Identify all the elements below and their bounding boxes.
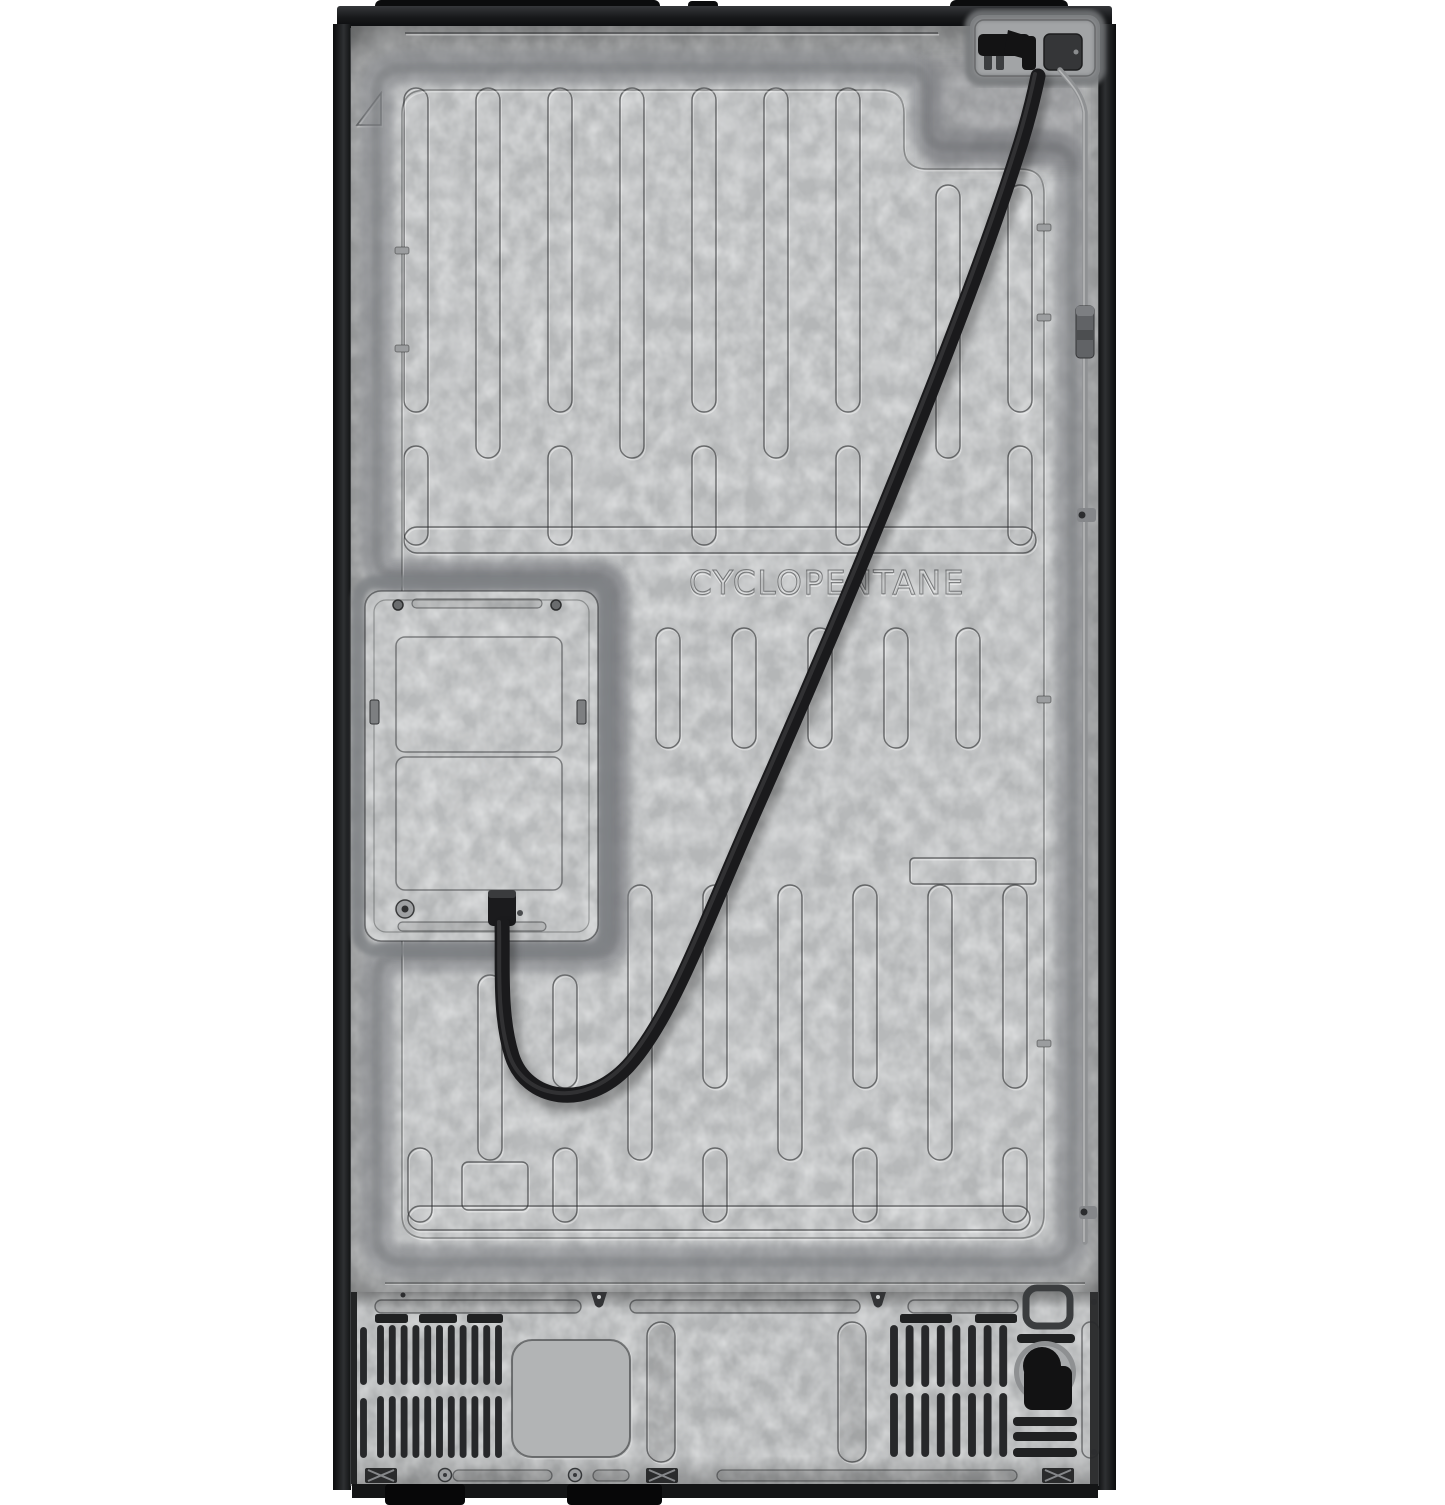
plate-screw-a [401, 1293, 406, 1298]
vent-slat [968, 1325, 976, 1387]
tab [395, 345, 409, 352]
screw-top-left [393, 600, 403, 610]
vent-slat [412, 1396, 419, 1458]
vent-slat [448, 1396, 455, 1458]
fastener-slot-3 [717, 1470, 1017, 1481]
drain-hole [517, 910, 523, 916]
vent-slat [436, 1396, 443, 1458]
vent-slat [999, 1325, 1007, 1387]
v-clip-left-pin [597, 1295, 601, 1299]
center-rib-2 [838, 1322, 866, 1462]
vent-slat [984, 1325, 992, 1387]
access-panel-upper-field [396, 637, 562, 752]
tube-coupling-cap [1076, 306, 1094, 316]
vent-slat [921, 1325, 929, 1387]
vent-slat [401, 1396, 408, 1458]
vent-slat [483, 1325, 490, 1385]
top-slot-right [908, 1300, 1018, 1313]
center-rib-1 [647, 1322, 675, 1462]
fastener-screw-2-dot [573, 1473, 577, 1477]
screw-top-right [551, 600, 561, 610]
vent-slat [401, 1325, 408, 1385]
clip-right [577, 700, 586, 724]
embossed-text: CYCLOPENTANE [689, 563, 965, 602]
clip-left [370, 700, 379, 724]
vent-slat [968, 1393, 976, 1457]
cord-grommet-cap [488, 890, 516, 898]
access-panel-bottom-slot [398, 922, 546, 931]
service-access-panel [358, 582, 606, 950]
plate-gap-left [351, 1292, 357, 1484]
cord-strain-relief [1022, 36, 1036, 70]
foot-center [567, 1484, 662, 1505]
v-clip-right-pin [876, 1295, 880, 1299]
vent-dash [975, 1314, 1017, 1323]
slat-below-2 [1013, 1432, 1077, 1441]
vent-slat [483, 1396, 490, 1458]
access-panel-top-slot [412, 599, 542, 608]
vent-slat [999, 1393, 1007, 1457]
vent-slat [436, 1325, 443, 1385]
vent-slat [360, 1327, 367, 1385]
tab [1037, 314, 1051, 321]
vent-slat [952, 1325, 960, 1387]
top-slot-center [630, 1300, 860, 1313]
vent-slat [424, 1325, 431, 1385]
vent-slat [377, 1325, 384, 1385]
vent-slat [906, 1325, 914, 1387]
vent-slat [460, 1396, 467, 1458]
vent-slat [495, 1325, 502, 1385]
tab [1037, 696, 1051, 703]
slat-below-3 [1013, 1448, 1077, 1457]
tube-clip-upper-screw [1079, 512, 1086, 519]
vent-slat [460, 1325, 467, 1385]
vent-slat [377, 1396, 384, 1458]
vent-slat [952, 1393, 960, 1457]
plate-top-slots [375, 1300, 1018, 1313]
vent-slat [495, 1396, 502, 1458]
fastener-slot-2 [593, 1470, 629, 1481]
blank-plate [512, 1340, 630, 1457]
plate-fastener-row [365, 1468, 1074, 1483]
plate-screw-c [1091, 1449, 1097, 1455]
refrigerator-back-illustration: CYCLOPENTANE CYCLOPENTANE [0, 0, 1445, 1505]
tab [395, 247, 409, 254]
tube-clip-lower-screw [1081, 1209, 1088, 1216]
vent-slat [921, 1393, 929, 1457]
tab [1037, 1040, 1051, 1047]
access-panel-lower-field [396, 757, 562, 890]
vent-slat [412, 1325, 419, 1385]
terminal-screw [1074, 50, 1079, 55]
vent-slat [906, 1393, 914, 1457]
fastener-slot-1 [453, 1470, 552, 1481]
refrigerator-back-photo: CYCLOPENTANE CYCLOPENTANE [0, 0, 1445, 1505]
vent-dash [467, 1314, 503, 1323]
plate-screw-b [1091, 1299, 1097, 1305]
screw-bottom-left [402, 906, 409, 913]
vent-slat [984, 1393, 992, 1457]
tube-coupling-band [1076, 330, 1094, 340]
vent-slat [890, 1393, 898, 1457]
vent-slat [360, 1398, 367, 1458]
vent-slat [389, 1396, 396, 1458]
vent-slat [937, 1393, 945, 1457]
tab [1037, 224, 1051, 231]
vent-slat [389, 1325, 396, 1385]
vent-slat [471, 1325, 478, 1385]
vent-slat [937, 1325, 945, 1387]
cyclopentane-embossed-text: CYCLOPENTANE CYCLOPENTANE [689, 563, 965, 604]
vent-slat [424, 1396, 431, 1458]
foot-left [385, 1484, 465, 1505]
side-rail-left [333, 24, 351, 1490]
top-slot-left [375, 1300, 581, 1313]
slat-below-1 [1013, 1417, 1077, 1426]
vent-slat [448, 1325, 455, 1385]
vent-slat [471, 1396, 478, 1458]
side-rail-right [1098, 24, 1116, 1490]
vent-dash [419, 1314, 457, 1323]
vent-slat [890, 1325, 898, 1387]
fastener-screw-1-dot [443, 1473, 447, 1477]
vent-dash [900, 1314, 952, 1323]
keyhole-body [1024, 1366, 1072, 1410]
vent-dash [375, 1314, 408, 1323]
